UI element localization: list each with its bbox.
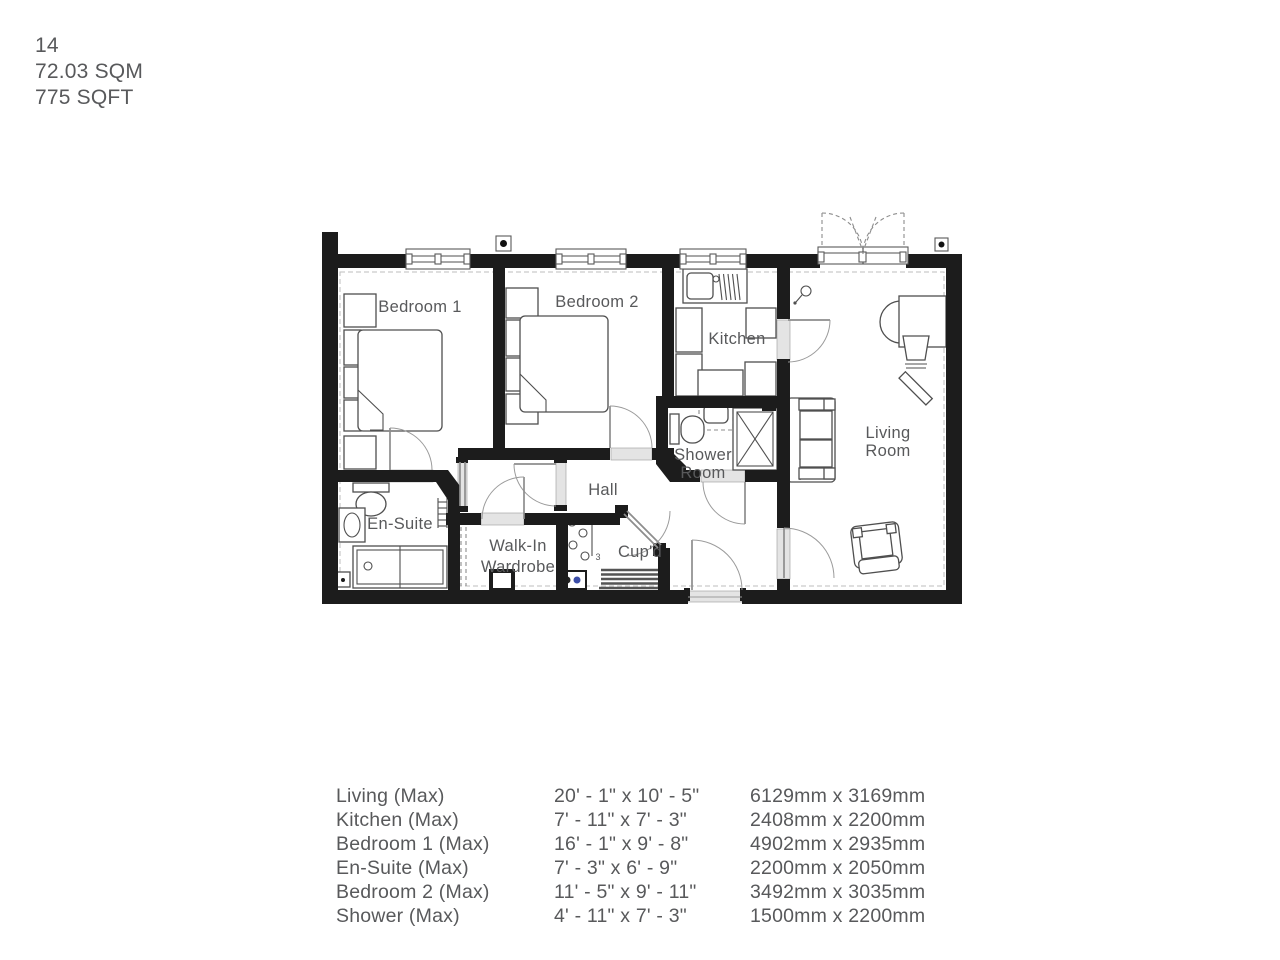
kitchen-door <box>788 320 830 362</box>
label-bedroom2: Bedroom 2 <box>555 293 638 311</box>
kitchen-cabinet <box>698 370 743 396</box>
dim-metric: 2200mm x 2050mm <box>750 856 925 880</box>
toilet-cistern <box>353 483 389 492</box>
label-wardrobe-2: Wardrobe <box>481 558 555 576</box>
dim-imperial: 11' - 5" x 9' - 11" <box>554 880 750 904</box>
dim-room: Living (Max) <box>336 784 554 808</box>
french-door <box>818 213 908 264</box>
dim-room: En-Suite (Max) <box>336 856 554 880</box>
label-wardrobe-1: Walk-In <box>489 537 546 555</box>
toilet-cistern <box>670 414 679 444</box>
label-shower-1: Shower <box>674 446 732 464</box>
label-living-2: Room <box>865 442 910 460</box>
sofa <box>787 398 835 482</box>
armchair <box>850 521 903 574</box>
living-room-door <box>784 528 834 578</box>
dim-metric: 1500mm x 2200mm <box>750 904 925 928</box>
window-kitchen <box>680 249 746 269</box>
radiator <box>599 570 661 588</box>
desk-chair <box>880 296 946 368</box>
dim-metric: 2408mm x 2200mm <box>750 808 925 832</box>
window-bedroom1 <box>406 249 470 269</box>
label-living-1: Living <box>866 424 911 442</box>
label-hook-count: 3 <box>595 552 600 562</box>
dim-metric: 3492mm x 3035mm <box>750 880 925 904</box>
toilet-bowl <box>681 416 704 443</box>
label-kitchen: Kitchen <box>708 330 765 348</box>
bedroom1-furniture <box>344 294 442 469</box>
side-table <box>899 372 932 405</box>
dim-metric: 4902mm x 2935mm <box>750 832 925 856</box>
ensuite-fixtures <box>337 483 447 588</box>
dim-room: Bedroom 1 (Max) <box>336 832 554 856</box>
dim-imperial: 20' - 1" x 10' - 5" <box>554 784 750 808</box>
dim-imperial: 7' - 3" x 6' - 9" <box>554 856 750 880</box>
bed-bedroom2 <box>520 316 608 412</box>
dim-imperial: 16' - 1" x 9' - 8" <box>554 832 750 856</box>
bedroom1-lobby-door <box>514 464 556 506</box>
label-ensuite: En-Suite <box>367 515 433 533</box>
label-cupd: Cup'd <box>618 543 662 561</box>
dim-imperial: 7' - 11" x 7' - 3" <box>554 808 750 832</box>
dim-room: Bedroom 2 (Max) <box>336 880 554 904</box>
shower-room-door <box>703 482 745 524</box>
ensuite-door <box>390 428 432 470</box>
bed-bedroom1 <box>358 330 442 431</box>
dimensions-table: Living (Max) 20' - 1" x 10' - 5" 6129mm … <box>336 784 925 928</box>
dim-metric: 6129mm x 3169mm <box>750 784 925 808</box>
dim-room: Shower (Max) <box>336 904 554 928</box>
towel-radiator <box>438 498 447 528</box>
entrance-door <box>688 540 742 597</box>
label-bedroom1: Bedroom 1 <box>378 298 461 316</box>
dim-imperial: 4' - 11" x 7' - 3" <box>554 904 750 928</box>
kitchen-cabinet <box>745 362 776 396</box>
bedroom2-door <box>610 406 652 448</box>
kitchen-cabinet <box>676 308 702 352</box>
pendant-light-icon <box>793 286 811 305</box>
floorplan-page: 14 72.03 SQM 775 SQFT <box>0 0 1280 960</box>
dim-room: Kitchen (Max) <box>336 808 554 832</box>
label-shower-2: Room <box>680 464 725 482</box>
window-bedroom2 <box>556 249 626 269</box>
label-hall: Hall <box>588 481 618 499</box>
